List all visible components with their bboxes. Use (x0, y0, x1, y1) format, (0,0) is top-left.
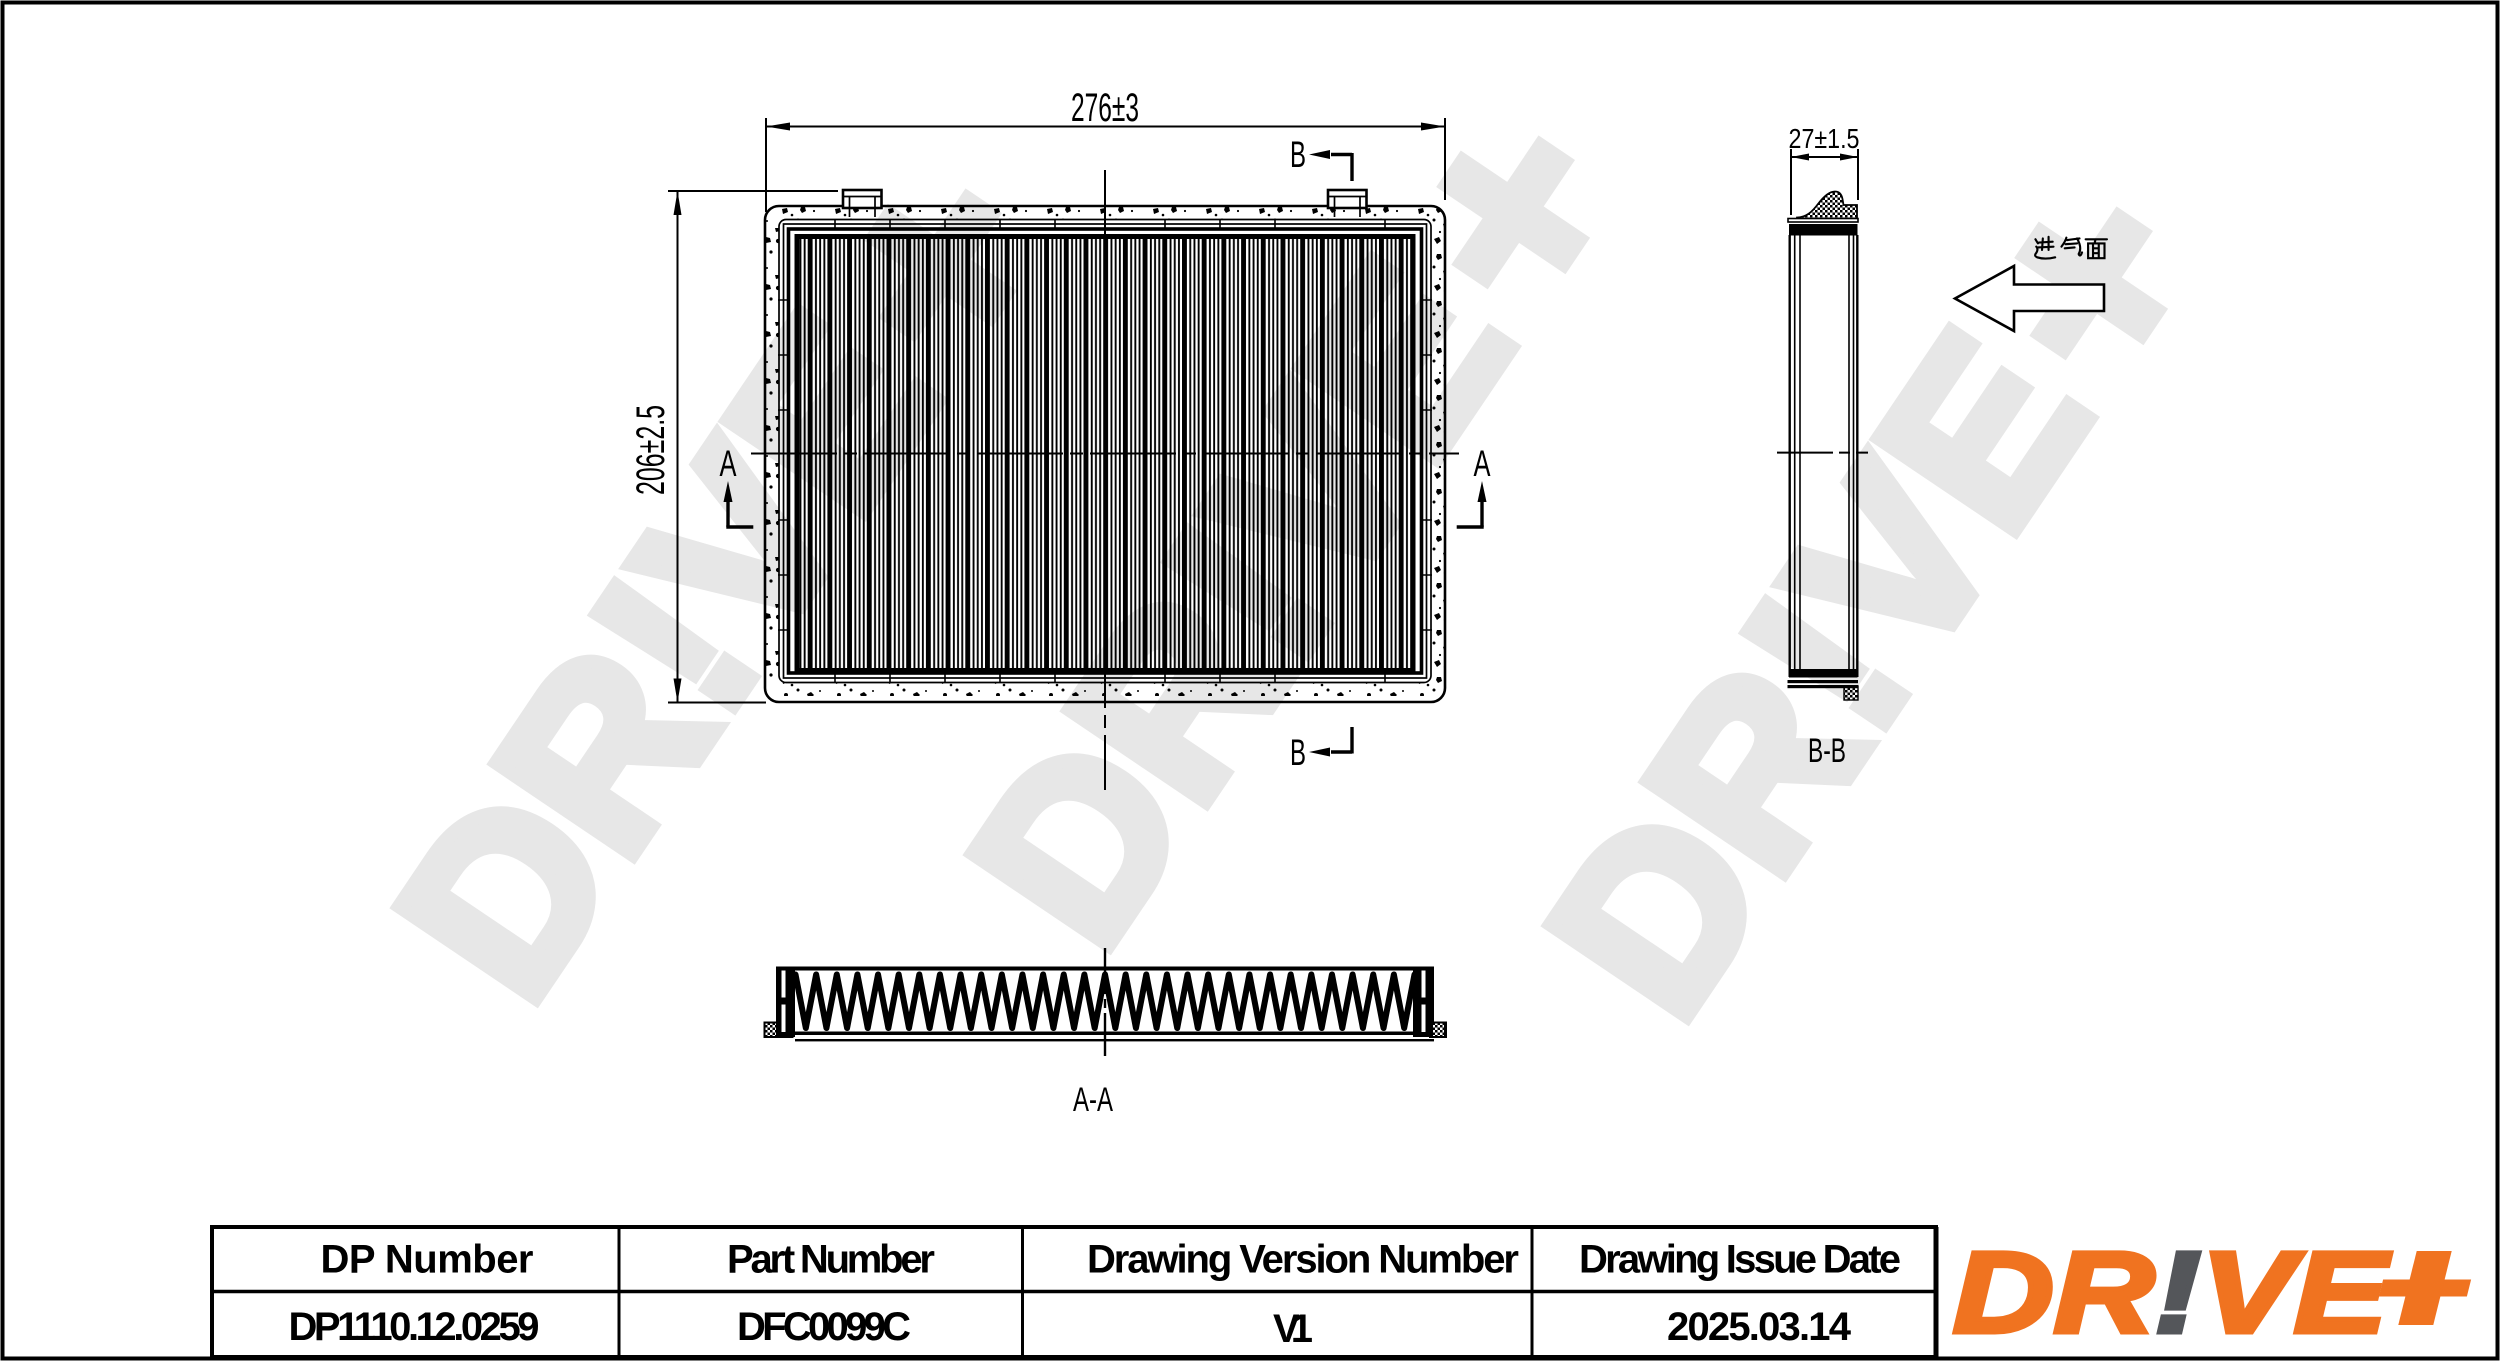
svg-text:Drawing Version Number: Drawing Version Number (1087, 1238, 1519, 1282)
svg-text:276±3: 276±3 (1071, 86, 1139, 130)
svg-text:DFC0099C: DFC0099C (737, 1305, 911, 1349)
svg-text:DR!VE: DR!VE (1953, 1229, 2391, 1357)
svg-text:2025.03.14: 2025.03.14 (1667, 1305, 1852, 1349)
svg-text:Part Number: Part Number (727, 1238, 935, 1282)
svg-text:DP Number: DP Number (321, 1238, 534, 1282)
svg-text:A: A (1474, 443, 1491, 484)
svg-text:A: A (720, 443, 737, 484)
svg-text:27±1.5: 27±1.5 (1789, 123, 1860, 154)
svg-text:DP1110.12.0259: DP1110.12.0259 (289, 1305, 540, 1349)
svg-text:A-A: A-A (1073, 1081, 1113, 1119)
svg-text:206±2.5: 206±2.5 (629, 405, 673, 495)
svg-text:B: B (1290, 134, 1306, 175)
svg-text:Drawing Issue Date: Drawing Issue Date (1579, 1238, 1901, 1282)
svg-text:B-B: B-B (1808, 732, 1846, 770)
svg-text:V1: V1 (1273, 1307, 1313, 1351)
svg-text:B: B (1290, 732, 1306, 773)
